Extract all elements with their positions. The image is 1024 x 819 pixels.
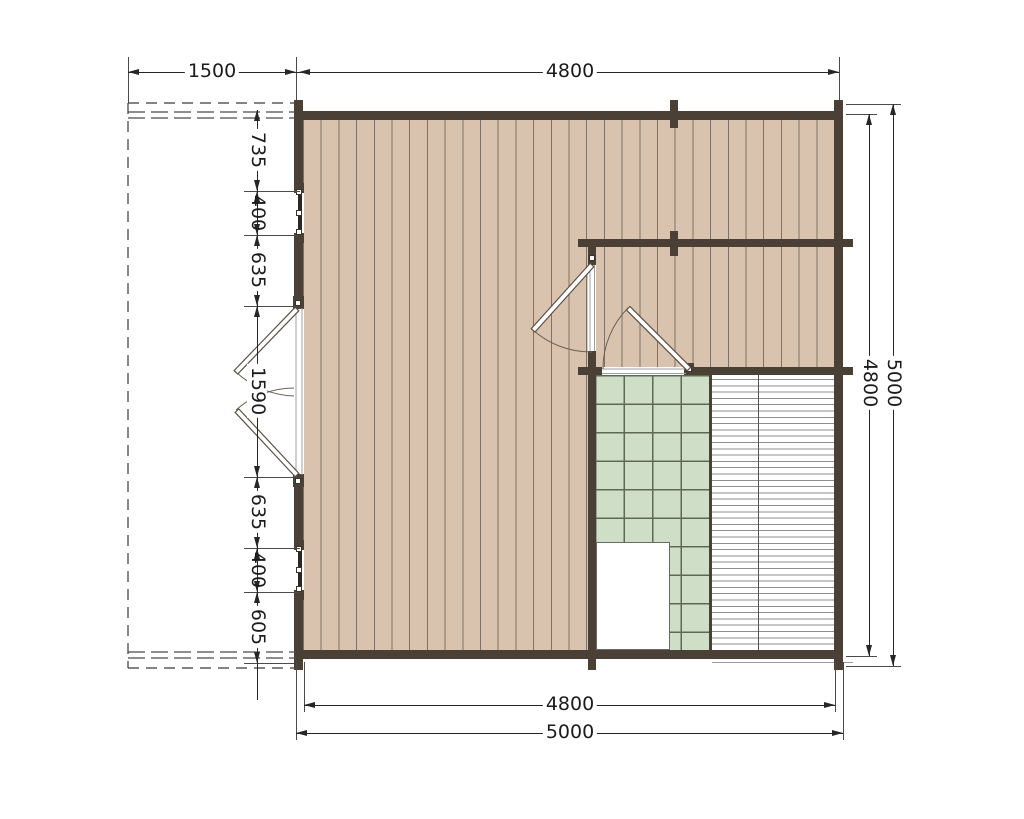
ext-line (846, 114, 877, 115)
dim-label-bottom-inner: 4800 (543, 695, 597, 715)
ext-line (839, 57, 840, 100)
double-door-leaf-bottom (235, 409, 299, 477)
dim-label-left-400b: 400 (247, 549, 267, 591)
dim-arrow (296, 730, 307, 736)
dim-arrow (254, 537, 260, 548)
floor-plan-canvas: 1500 4800 735 400 635 1590 635 400 605 4… (0, 0, 1024, 819)
top-wall (297, 111, 842, 120)
ext-line (244, 306, 300, 307)
double-door-hinge-pin-bottom (295, 478, 301, 484)
dim-arrow (254, 652, 260, 663)
dim-arrow (299, 69, 310, 75)
dim-arrow (254, 592, 260, 603)
dim-label-top-width: 4800 (543, 62, 597, 82)
dim-label-porch-width: 1500 (185, 62, 239, 82)
ext-line (296, 57, 297, 100)
dim-arrow (890, 104, 896, 115)
dim-arrow (128, 69, 139, 75)
interior-door-1-opening (588, 265, 596, 351)
dim-arrow (890, 655, 896, 666)
dim-arrow (254, 110, 260, 121)
terrace-slatted-floor (712, 375, 834, 650)
dim-arrow (824, 702, 835, 708)
dim-label-left-635b: 635 (247, 491, 267, 533)
dim-arrow (254, 295, 260, 306)
dim-label-bottom-outer: 5000 (543, 723, 597, 743)
ext-line (244, 592, 300, 593)
dim-arrow (304, 702, 315, 708)
window-2-joint-middle (296, 567, 302, 573)
interior-wall-vertical-bottom (588, 351, 596, 670)
dim-label-left-400a: 400 (247, 192, 267, 234)
ext-line (244, 477, 300, 478)
washroom-terrace-partition (709, 375, 712, 650)
dim-label-left-735: 735 (247, 129, 267, 171)
interior-door-2-hinge-pin (686, 366, 692, 372)
dim-arrow (254, 180, 260, 191)
dim-arrow (285, 69, 296, 75)
ext-line (846, 656, 877, 657)
dim-label-right-outer: 5000 (883, 356, 903, 410)
interior-wall-upper (578, 239, 853, 247)
dim-arrow (828, 69, 839, 75)
right-wall (834, 100, 843, 670)
dim-arrow (866, 114, 872, 125)
ext-line (846, 666, 901, 667)
bottom-wall (297, 650, 842, 659)
double-door-opening (293, 308, 304, 475)
dim-arrow (254, 306, 260, 317)
dim-arrow (866, 645, 872, 656)
dim-label-left-1590: 1590 (247, 364, 267, 418)
terrace-step-line (712, 662, 853, 663)
dim-label-left-635a: 635 (247, 249, 267, 291)
ext-line (244, 663, 294, 664)
ext-line (128, 57, 129, 103)
ext-line (296, 662, 297, 740)
window-2-joint-top (296, 546, 302, 552)
ext-line (843, 662, 844, 740)
dim-arrow (254, 466, 260, 477)
interior-door-1-hinge-pin (589, 255, 595, 261)
interior-wall-vertical-top (588, 239, 596, 265)
window-1-joint-top (296, 189, 302, 195)
dim-arrow (254, 477, 260, 488)
dim-label-left-605: 605 (247, 606, 267, 648)
dim-arrow (832, 730, 843, 736)
terrace-divider-line (758, 375, 759, 650)
terrace-slats (712, 379, 834, 646)
window-1-joint-middle (296, 210, 302, 216)
ext-line (835, 662, 836, 712)
interior-door-2-opening (602, 367, 686, 375)
dim-arrow (254, 235, 260, 246)
ext-line (244, 235, 300, 236)
washroom-bench (596, 542, 670, 650)
dim-label-right-inner: 4800 (859, 356, 879, 410)
top-wall-log-stub (670, 100, 678, 128)
